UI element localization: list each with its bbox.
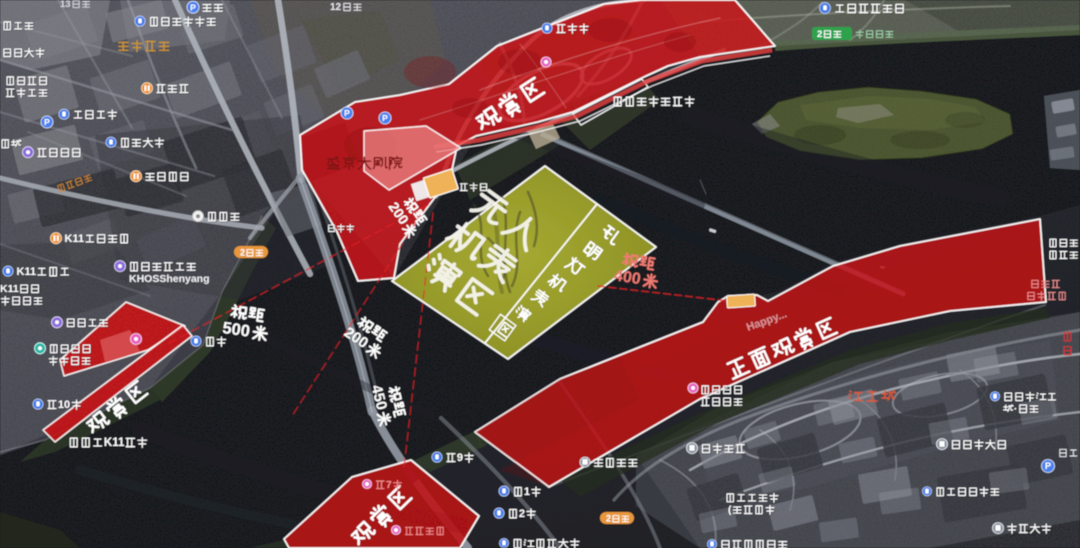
svg-text:K11: K11	[65, 233, 85, 245]
svg-text:13: 13	[60, 0, 71, 10]
svg-text:K11: K11	[17, 266, 37, 278]
svg-text:2: 2	[817, 29, 822, 40]
svg-text:7: 7	[386, 479, 392, 491]
svg-text:10: 10	[58, 399, 70, 411]
svg-text:P: P	[344, 108, 350, 118]
svg-text:2: 2	[519, 508, 525, 520]
svg-text:K11: K11	[0, 283, 19, 295]
svg-text:KHOSShenyang: KHOSShenyang	[129, 273, 210, 285]
svg-text:2: 2	[606, 514, 611, 524]
svg-text:2: 2	[240, 248, 245, 258]
svg-text:·: ·	[1014, 403, 1018, 415]
svg-text:P: P	[190, 2, 196, 12]
svg-text:P: P	[44, 117, 50, 127]
svg-text:P: P	[1045, 461, 1051, 471]
svg-text:9: 9	[457, 452, 463, 464]
svg-text:1: 1	[524, 486, 530, 498]
svg-text:12: 12	[330, 2, 342, 13]
svg-text:P: P	[382, 113, 388, 123]
svg-text:(: (	[728, 504, 732, 516]
svg-text:K11: K11	[104, 437, 125, 449]
svg-text:500: 500	[221, 319, 251, 341]
